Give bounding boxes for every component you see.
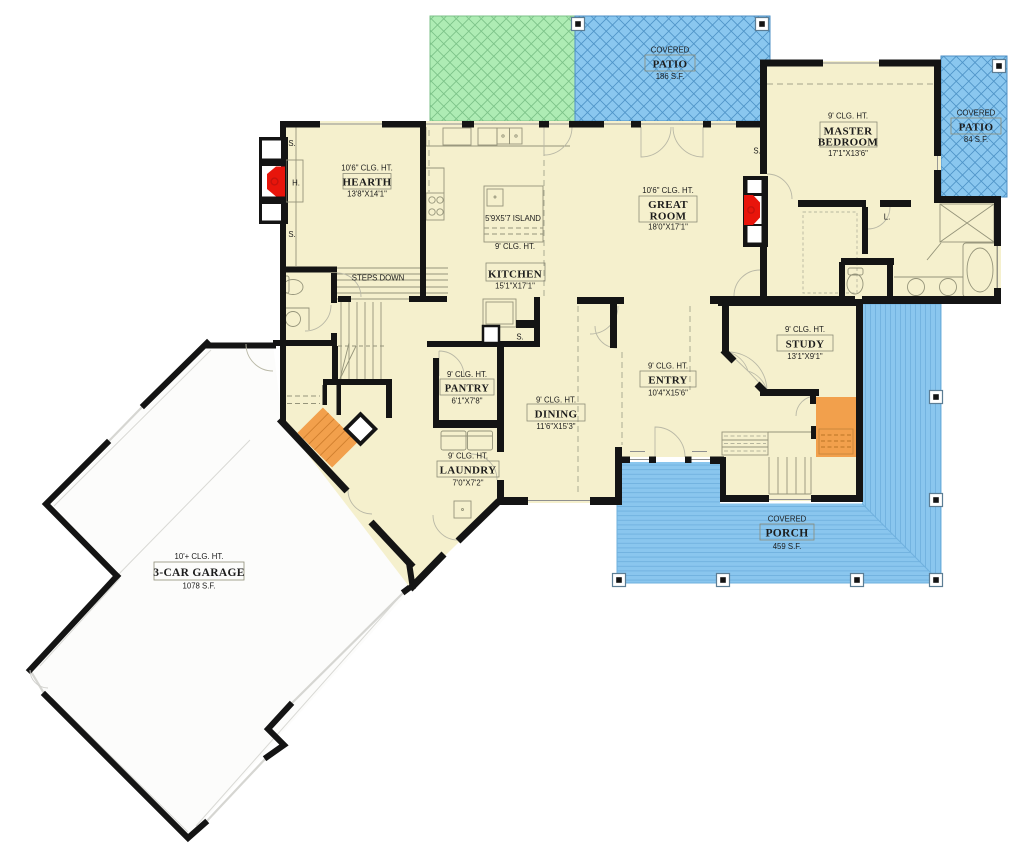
svg-text:11'6"X15'3": 11'6"X15'3" — [536, 422, 575, 431]
svg-text:COVERED: COVERED — [651, 46, 690, 55]
svg-text:9' CLG. HT.: 9' CLG. HT. — [495, 242, 535, 251]
svg-text:3-CAR GARAGE: 3-CAR GARAGE — [153, 567, 244, 579]
svg-text:STEPS DOWN: STEPS DOWN — [352, 274, 404, 283]
svg-text:7'0"X7'2": 7'0"X7'2" — [452, 479, 483, 488]
svg-text:84 S.F.: 84 S.F. — [964, 135, 988, 144]
svg-text:PORCH: PORCH — [765, 528, 808, 540]
svg-text:15'1"X17'1": 15'1"X17'1" — [495, 282, 535, 291]
svg-text:PANTRY: PANTRY — [445, 384, 490, 395]
svg-text:5'9X5'7 ISLAND: 5'9X5'7 ISLAND — [485, 214, 541, 223]
svg-text:ROOM: ROOM — [650, 211, 687, 223]
svg-text:9' CLG. HT.: 9' CLG. HT. — [447, 370, 487, 379]
svg-text:17'1"X13'6": 17'1"X13'6" — [828, 149, 868, 158]
svg-text:186 S.F.: 186 S.F. — [656, 72, 685, 81]
svg-text:9' CLG. HT.: 9' CLG. HT. — [828, 112, 868, 121]
svg-text:PATIO: PATIO — [653, 59, 688, 71]
svg-text:ENTRY: ENTRY — [648, 375, 688, 387]
svg-text:COVERED: COVERED — [768, 515, 807, 524]
svg-text:10'4"X15'6": 10'4"X15'6" — [648, 389, 688, 398]
svg-text:COVERED: COVERED — [957, 109, 996, 118]
svg-text:H.: H. — [292, 179, 300, 188]
svg-text:S.: S. — [288, 139, 295, 148]
svg-text:S.: S. — [516, 333, 523, 342]
svg-text:6'1"X7'8": 6'1"X7'8" — [451, 397, 482, 406]
svg-text:DINING: DINING — [535, 409, 578, 421]
svg-text:HEARTH: HEARTH — [342, 177, 391, 189]
svg-text:LAUNDRY: LAUNDRY — [440, 465, 497, 477]
svg-text:L.: L. — [884, 213, 891, 222]
svg-text:1078 S.F.: 1078 S.F. — [183, 582, 216, 591]
svg-text:459 S.F.: 459 S.F. — [773, 542, 802, 551]
svg-text:9' CLG. HT.: 9' CLG. HT. — [785, 325, 825, 334]
svg-text:S.: S. — [753, 147, 760, 156]
svg-text:13'1"X9'1": 13'1"X9'1" — [787, 352, 823, 361]
svg-text:STUDY: STUDY — [786, 339, 825, 351]
svg-text:PATIO: PATIO — [959, 122, 994, 134]
svg-text:18'0"X17'1": 18'0"X17'1" — [648, 223, 688, 232]
svg-text:S.: S. — [288, 230, 295, 239]
svg-text:9' CLG. HT.: 9' CLG. HT. — [648, 362, 688, 371]
svg-text:10'+ CLG. HT.: 10'+ CLG. HT. — [175, 552, 224, 561]
svg-text:9' CLG. HT.: 9' CLG. HT. — [448, 452, 488, 461]
svg-text:GREAT: GREAT — [648, 199, 688, 211]
svg-text:BEDROOM: BEDROOM — [818, 137, 878, 149]
svg-text:10'6" CLG. HT.: 10'6" CLG. HT. — [341, 164, 393, 173]
svg-text:13'8"X14'1": 13'8"X14'1" — [347, 190, 387, 199]
svg-text:10'6" CLG. HT.: 10'6" CLG. HT. — [642, 186, 694, 195]
svg-text:KITCHEN: KITCHEN — [488, 269, 542, 281]
svg-text:9' CLG. HT.: 9' CLG. HT. — [536, 396, 576, 405]
